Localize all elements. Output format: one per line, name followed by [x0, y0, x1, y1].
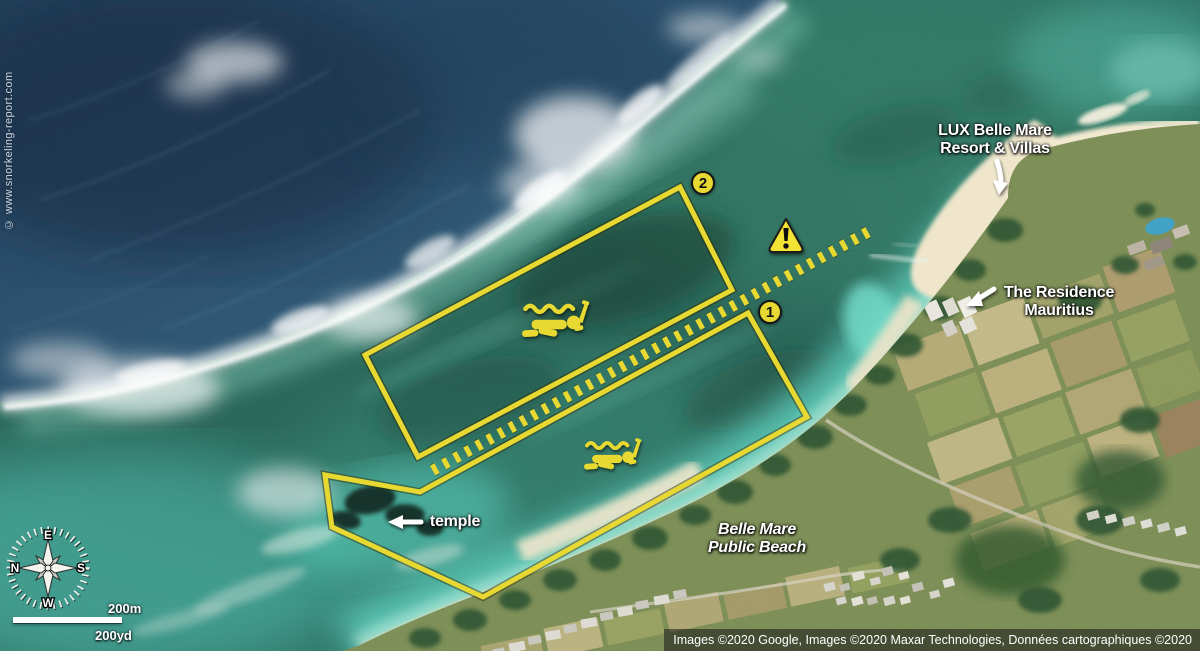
snorkeling-map: E S W N LUX Belle Mare Resort & Vi — [0, 0, 1200, 651]
snorkeler-icon — [522, 300, 590, 338]
map-overlay: E S W N — [0, 0, 1200, 651]
boat-channel-dashed-line — [430, 232, 868, 472]
label-temple: temple — [430, 513, 480, 531]
scale-imperial-label: 200yd — [95, 628, 132, 643]
scale-bar — [13, 617, 122, 623]
label-public-beach-line2: Public Beach — [708, 539, 806, 557]
label-public-beach: Belle Mare Public Beach — [708, 521, 806, 557]
compass-letter-w: W — [42, 596, 54, 610]
label-residence-line2: Mauritius — [1004, 302, 1114, 320]
label-lux-resort: LUX Belle Mare Resort & Villas — [938, 122, 1052, 158]
watermark: © www.snorkeling-report.com — [3, 20, 15, 230]
temple-arrow-icon — [388, 515, 421, 529]
snorkeler-icon — [584, 438, 642, 470]
warning-icon — [770, 219, 803, 252]
label-residence: The Residence Mauritius — [1004, 284, 1114, 320]
label-lux-resort-line2: Resort & Villas — [938, 140, 1052, 158]
label-lux-resort-line1: LUX Belle Mare — [938, 122, 1052, 140]
compass-letter-n: N — [11, 561, 20, 575]
label-public-beach-line1: Belle Mare — [708, 521, 806, 539]
label-temple-text: temple — [430, 513, 480, 530]
label-residence-line1: The Residence — [1004, 284, 1114, 302]
residence-arrow-icon — [966, 289, 994, 306]
lux-resort-arrow-icon — [993, 161, 1008, 195]
compass-letter-s: S — [77, 561, 85, 575]
compass-letter-e: E — [44, 528, 52, 542]
zone-2-badge: 2 — [691, 171, 715, 195]
compass-rose-icon: E S W N — [10, 528, 87, 610]
scale-metric-label: 200m — [108, 601, 141, 616]
zone-1-badge: 1 — [758, 300, 782, 324]
attribution-bar: Images ©2020 Google, Images ©2020 Maxar … — [664, 629, 1200, 651]
